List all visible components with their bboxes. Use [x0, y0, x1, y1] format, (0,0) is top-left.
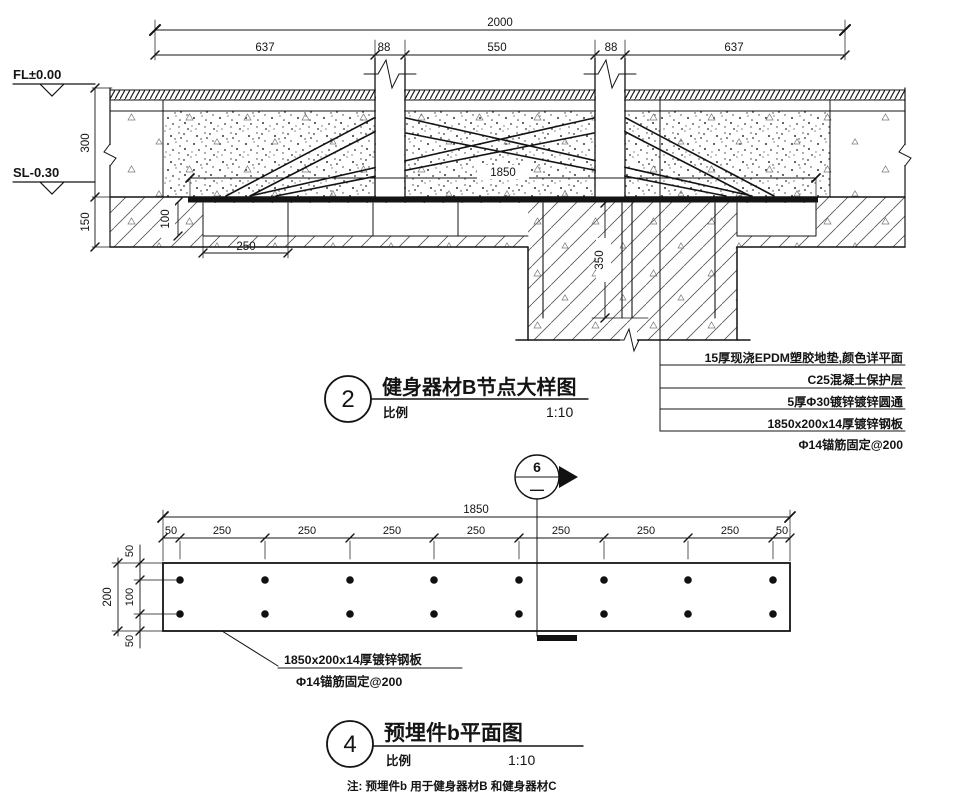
dim-label: 250	[213, 525, 231, 537]
material-note: Φ14锚筋固定@200	[798, 437, 903, 452]
dim-label: 1850	[490, 167, 516, 179]
dim-label: 350	[594, 250, 606, 269]
scale-label: 比例	[383, 405, 408, 420]
dim-label: 1850	[463, 504, 489, 516]
dim-label: 250	[467, 525, 485, 537]
dim-label: 550	[487, 42, 506, 54]
dim-label: 88	[378, 42, 391, 54]
dim-label: 300	[80, 133, 92, 152]
dim-label: 637	[724, 42, 743, 54]
dim-label: 88	[605, 42, 618, 54]
level-marker-sl: SL-0.30	[13, 165, 95, 194]
material-note: 5厚Φ30镀锌镀锌圆通	[787, 394, 903, 409]
section-left-dimensions: 300 150	[80, 84, 112, 251]
detail-number: 2	[341, 386, 354, 413]
plan-footnote: 注: 预埋件b 用于健身器材B 和健身器材C	[347, 779, 557, 793]
embedded-plate	[163, 563, 790, 631]
cad-drawing: 2000 637 88 550 88 637 FL±0.00 SL-0.30 3…	[0, 0, 960, 808]
dim-label: 250	[298, 525, 316, 537]
plan-plate-callout: 1850x200x14厚镀锌钢板 Φ14锚筋固定@200	[222, 631, 462, 689]
level-marker-fl: FL±0.00	[13, 67, 95, 96]
dim-label: 50	[165, 525, 177, 537]
callout-text: 1850x200x14厚镀锌钢板	[284, 652, 422, 667]
section-cut-bar	[537, 635, 577, 641]
dim-label: 50	[124, 635, 136, 647]
scale-value: 1:10	[546, 404, 573, 420]
dim-label: 250	[552, 525, 570, 537]
detail-title: 健身器材B节点大样图	[382, 375, 576, 399]
dim-label: 100	[124, 588, 136, 606]
plan-drawing: 6 — 1850 50 250 250 250 250 250 250 250 …	[102, 455, 795, 793]
section-top-dimensions: 2000 637 88 550 88 637	[150, 17, 850, 60]
level-label: FL±0.00	[13, 67, 61, 82]
dim-label: 50	[776, 525, 788, 537]
material-note: C25混凝土保护层	[808, 372, 903, 387]
dim-label: 250	[383, 525, 401, 537]
scale-label: 比例	[386, 753, 411, 768]
dim-label: 250	[236, 241, 255, 253]
plan-top-dimensions: 1850 50 250 250 250 250 250 250 250 50	[158, 504, 795, 561]
material-note: 1850x200x14厚镀锌钢板	[768, 416, 904, 431]
material-note: 15厚现浇EPDM塑胶地垫,颜色详平面	[705, 350, 903, 365]
dim-label: 200	[102, 587, 114, 606]
level-label: SL-0.30	[13, 165, 59, 180]
callout-text: Φ14锚筋固定@200	[296, 674, 402, 689]
dim-label: 637	[255, 42, 274, 54]
section-sheet: —	[530, 481, 544, 497]
steel-base-plate	[188, 197, 818, 203]
scale-value: 1:10	[508, 752, 535, 768]
dim-label: 100	[160, 209, 172, 228]
epdm-layer	[110, 90, 905, 100]
dim-label: 150	[80, 212, 92, 231]
plan-title-block: 4 预埋件b平面图 比例 1:10	[327, 721, 583, 768]
section-drawing: 2000 637 88 550 88 637 FL±0.00 SL-0.30 3…	[13, 17, 913, 452]
section-number: 6	[533, 459, 541, 475]
drawing-canvas: 2000 637 88 550 88 637 FL±0.00 SL-0.30 3…	[0, 0, 960, 808]
dim-label: 250	[721, 525, 739, 537]
detail-number: 4	[343, 731, 356, 758]
detail-title: 预埋件b平面图	[384, 722, 523, 745]
section-title-block: 2 健身器材B节点大样图 比例 1:10	[325, 375, 588, 422]
dim-label: 50	[124, 545, 136, 557]
dim-label: 2000	[487, 17, 513, 29]
section-direction-arrow	[559, 466, 578, 488]
dim-label: 250	[637, 525, 655, 537]
